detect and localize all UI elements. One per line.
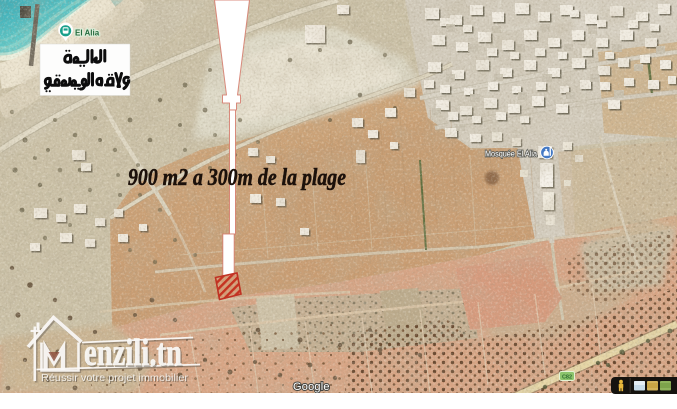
- svg-text:El Alia: El Alia: [75, 29, 100, 38]
- svg-text:900 m2 a 300m de la plage: 900 m2 a 300m de la plage: [128, 165, 346, 191]
- svg-text:C82: C82: [562, 374, 572, 380]
- svg-text:enzili.tn: enzili.tn: [84, 332, 182, 374]
- svg-text:Google: Google: [293, 381, 330, 393]
- svg-text:Mosquée El Alia: Mosquée El Alia: [485, 150, 537, 159]
- svg-text:Réussir votre projet immobilie: Réussir votre projet immobilier: [41, 372, 189, 384]
